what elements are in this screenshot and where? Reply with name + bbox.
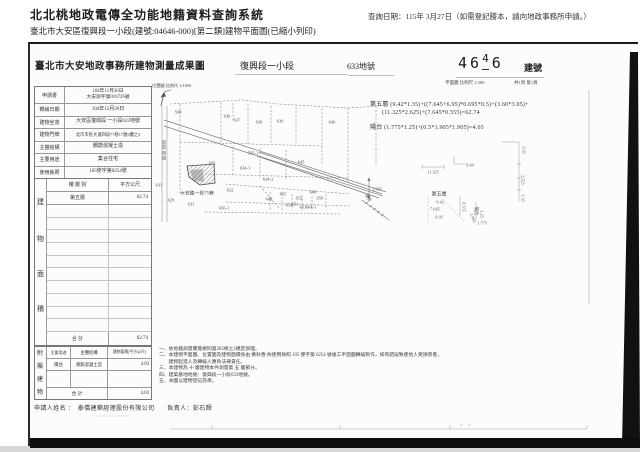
area-total-value: 62.74: [109, 332, 151, 345]
attached-header-area: 建物面積(平方公尺): [108, 347, 151, 358]
attached-row: 陽台 鋼筋混凝土造 4.03: [47, 359, 151, 371]
street-label: 大安路一段75巷: [180, 190, 214, 197]
system-title: 北北桃地政電傳全功能地籍資料查詢系統: [30, 6, 264, 23]
lot-label: 651: [292, 202, 299, 207]
rule: [235, 74, 347, 75]
side-label-char: 積: [37, 304, 44, 314]
info-value: 北市市民大道四段77巷17號5樓之2: [65, 129, 151, 141]
query-date-label: 查詢日期：115年 3月27日（如需登記謄本，請向地政事務所申請。）: [368, 11, 591, 22]
stamp-digit: 4: [482, 52, 489, 70]
info-label: 建物坐落: [35, 117, 65, 129]
info-row: 申請書 104年11月26日 大安測字第016726號: [35, 87, 151, 104]
area-formula-line-2: (11.325*2.625)+(7.645*0.555)=62.74: [382, 110, 480, 116]
dimension-label: 3.60: [466, 163, 474, 168]
side-label-char: 屬: [37, 361, 43, 370]
empty-row: [47, 294, 151, 307]
dimension-label: 1.775: [477, 221, 487, 226]
building-number-label: 建號: [524, 61, 542, 74]
lot-label: 633: [156, 183, 163, 188]
dimension-label: 6.95: [435, 215, 443, 220]
info-label: 主要用途: [35, 154, 65, 166]
info-value: 大安區復興段 一小段633地號: [65, 117, 151, 129]
attached-structure: 鋼筋混凝土造: [71, 359, 108, 370]
info-value: 104年11月26日 大安測字第016726號: [65, 87, 151, 103]
building-number-stamp: 4 6 4 6: [458, 54, 501, 72]
lot-label: 635: [209, 161, 216, 166]
lot-label: 648: [266, 197, 273, 202]
lot-label: 656-1: [219, 206, 230, 211]
rule: [348, 75, 394, 76]
info-label: 建物門牌: [35, 129, 65, 141]
empty-row: [47, 256, 151, 269]
lot-label: 629: [168, 198, 175, 203]
area-total-label: 合 計: [47, 332, 109, 345]
attached-total-value: 4.03: [108, 388, 151, 399]
office-title: 臺北市大安地政事務所建物測量成果圖: [35, 58, 205, 72]
info-row: 建物門牌 北市市民大道四段77巷17號5樓之2: [35, 129, 151, 142]
street-label-vertical: 復興南路: [161, 140, 167, 161]
balcony-label: 陽台: [473, 207, 479, 216]
area-formula-line-1: 第五層 (9.42*1.35)+((7.645+6.95)*0.695*0.5)…: [370, 99, 529, 108]
stamp-digit: 6: [492, 54, 501, 72]
floor-plan-floor-label: 第五層: [431, 191, 446, 198]
lot-label: 639: [277, 119, 284, 124]
lot-label: 638: [256, 120, 263, 125]
lot-label: 655: [280, 192, 287, 197]
empty-row: [47, 319, 151, 332]
dimension-label: 11.325: [427, 170, 439, 175]
lot-label: 595-1: [248, 151, 259, 156]
dimension-label: 1.35: [521, 194, 526, 202]
side-label-char: 物: [37, 387, 43, 396]
info-value: 鋼筋混凝土造: [65, 142, 151, 154]
floor-area-table: 建 物 面 積 樓 層 別 平方公尺 第五層 62.74: [34, 178, 152, 346]
info-label: 主體結構: [35, 142, 65, 154]
lot-label: 634-2: [263, 177, 274, 182]
info-row: 主要用途 集合住宅: [35, 154, 151, 167]
lot-label: 645: [298, 160, 305, 165]
empty-row: [47, 230, 151, 243]
location-map-lines: [162, 100, 386, 222]
balcony-triangle-dim: 1.905: [372, 187, 382, 192]
rule: [456, 77, 544, 78]
info-table: 申請書 104年11月26日 大安測字第016726號 轉繪日期 104年12月…: [34, 86, 152, 179]
lot-label: 640: [329, 120, 336, 125]
empty-row: [47, 307, 151, 320]
floor-sqm: 62.74: [109, 192, 151, 204]
scan-document: 臺北市大安地政事務所建物測量成果圖 復興段一小段 633地號 4 6 4 6 建…: [28, 42, 638, 446]
attached-total-row: 合 計 4.03: [47, 388, 151, 399]
attached-header-use: 主要用途: [47, 347, 71, 358]
section-name: 復興段一小段: [240, 59, 294, 72]
dimension-label: 3.05: [522, 146, 527, 154]
dimension-label: 0.555: [462, 202, 467, 212]
land-number: 633地號: [347, 61, 375, 72]
redaction-bar-right: [622, 52, 640, 446]
floor-row: 第五層 62.74: [47, 192, 151, 205]
query-system-page: 北北桃地政電傳全功能地籍資料查詢系統 查詢日期：115年 3月27日（如需登記謄…: [0, 0, 640, 452]
lot-label: 634-1: [240, 166, 251, 171]
attached-header-row: 主要用途 主體結構 建物面積(平方公尺): [47, 347, 151, 359]
empty-row: [47, 281, 151, 294]
info-value: 105使字第0254號: [65, 167, 151, 179]
info-label: 使用執照: [35, 167, 65, 179]
page-count-label: 共1頁 第1頁: [514, 80, 538, 86]
dimension-label: 7.645: [430, 207, 440, 212]
signature-line: [92, 416, 587, 429]
attached-header-structure: 主體結構: [71, 347, 108, 358]
floor-name: 第五層: [47, 192, 109, 204]
info-row: 建物坐落 大安區復興段 一小段633地號: [35, 117, 151, 130]
lot-label: 654: [286, 203, 293, 208]
empty-row: [47, 218, 151, 231]
lot-label: 598: [175, 110, 182, 115]
stamp-digit: 6: [470, 54, 479, 72]
attached-section-side-label: 附 屬 建 物: [35, 347, 47, 399]
notes-block: 一、依地籍測量實施規則第282條之2規定辦理。 二、本建物平面圖、位置圖及建物面…: [159, 347, 637, 385]
area-formula-line-3: 陽台 (1.775*1.25)+(0.5*1.905*1.905)=4.03: [370, 122, 484, 131]
attached-total-label: 合 計: [47, 388, 108, 399]
lot-label: 664-1: [306, 205, 317, 210]
area-header-row: 樓 層 別 平方公尺: [47, 179, 151, 192]
lot-label: 650: [317, 196, 324, 201]
attached-building-table: 附 屬 建 物 主要用途 主體結構 建物面積(平方公尺) 陽台 鋼筋混凝土造 4…: [34, 346, 152, 400]
info-row: 主體結構 鋼筋混凝土造: [35, 142, 151, 155]
side-label-char: 物: [37, 234, 44, 244]
north-arrow-icon: [161, 90, 172, 106]
map-scale-label: 位置圖 比例尺 1/1000: [152, 83, 191, 89]
side-label-char: 附: [37, 348, 43, 357]
stamp-digit: 4: [458, 54, 467, 72]
dimension-label: 9.42: [436, 200, 444, 205]
sqm-col-header: 平方公尺: [109, 179, 151, 191]
lot-label: 637: [234, 118, 241, 123]
floor-col-header: 樓 層 別: [47, 179, 109, 191]
plan-scale-label: 平面圖 比例尺 1/200: [445, 80, 485, 86]
lot-label: 636: [224, 114, 231, 119]
info-value: 集合住宅: [65, 154, 151, 166]
side-label-char: 建: [37, 197, 44, 207]
area-section-side-label: 建 物 面 積: [35, 179, 47, 345]
dimension-label: 2.625: [521, 175, 526, 185]
info-label: 申請書: [35, 87, 65, 103]
info-value-line: 大安測字第016726號: [86, 95, 129, 101]
note-line: 五、本圖以建物登記為準。: [159, 379, 637, 385]
empty-row: [47, 268, 151, 281]
dimension-label: 1.25: [480, 210, 485, 218]
area-total-row: 合 計 62.74: [47, 332, 151, 345]
info-label: 轉繪日期: [35, 104, 65, 116]
side-label-char: 建: [37, 374, 43, 383]
empty-row: [47, 371, 151, 388]
empty-row: [47, 243, 151, 256]
redaction-bar-bottom: [30, 438, 640, 448]
empty-row: [47, 205, 151, 218]
info-row: 轉繪日期 104年12月26日: [35, 104, 151, 117]
info-value: 104年12月26日: [65, 104, 151, 116]
attached-use: 陽台: [47, 359, 71, 370]
lot-label: 652: [296, 196, 303, 201]
side-label-char: 面: [37, 269, 44, 279]
lot-label: 631: [188, 202, 195, 207]
lot-label: 632: [227, 188, 234, 193]
attached-area: 4.03: [108, 359, 151, 370]
applicant-line: 申請人姓名 ： 泰僑建築經理股份有限公司 負責人：彭石輝: [34, 403, 212, 412]
document-subtitle: 臺北市大安區復興段一小段(建號:04646-000)[第二類]建物平面圖(已縮小…: [30, 25, 316, 37]
lot-label: 646: [310, 190, 317, 195]
